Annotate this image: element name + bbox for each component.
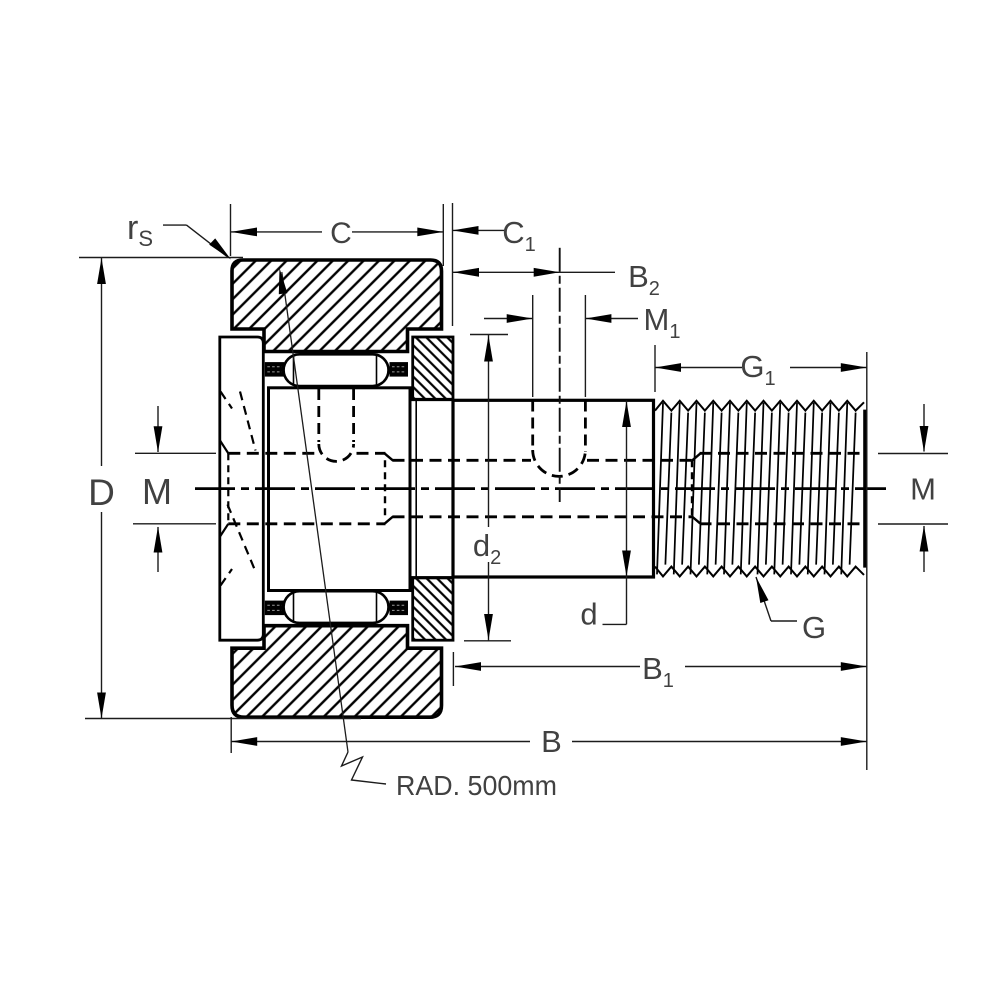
svg-text:C: C xyxy=(330,217,352,250)
svg-text:M: M xyxy=(142,471,172,512)
svg-text:RAD. 500mm: RAD. 500mm xyxy=(396,770,557,801)
svg-text:d: d xyxy=(580,597,597,632)
svg-text:M: M xyxy=(910,472,936,507)
svg-text:G: G xyxy=(802,610,826,645)
svg-text:D: D xyxy=(88,472,115,513)
svg-text:B: B xyxy=(541,724,562,759)
